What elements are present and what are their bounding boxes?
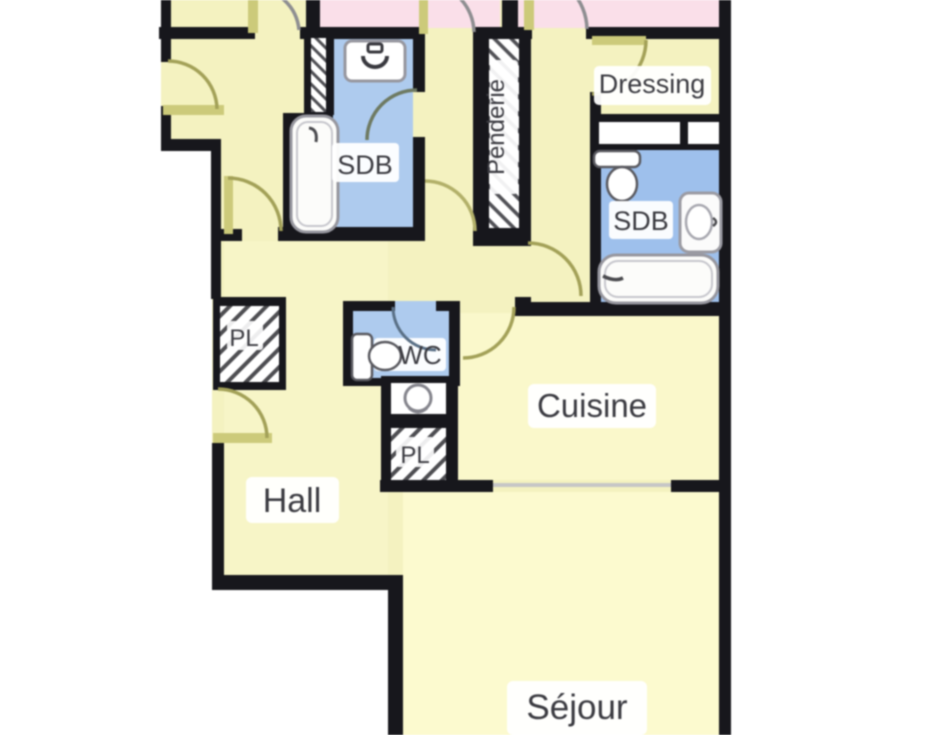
svg-text:Penderie: Penderie bbox=[483, 79, 510, 175]
svg-text:Hall: Hall bbox=[263, 482, 322, 520]
svg-text:PL: PL bbox=[400, 442, 429, 469]
svg-text:Séjour: Séjour bbox=[526, 688, 628, 727]
svg-text:WC: WC bbox=[398, 340, 441, 370]
svg-text:Dressing: Dressing bbox=[599, 69, 706, 99]
svg-text:Cuisine: Cuisine bbox=[537, 387, 647, 424]
svg-text:PL: PL bbox=[229, 325, 258, 352]
svg-text:SDB: SDB bbox=[337, 150, 393, 180]
svg-text:SDB: SDB bbox=[613, 206, 669, 236]
